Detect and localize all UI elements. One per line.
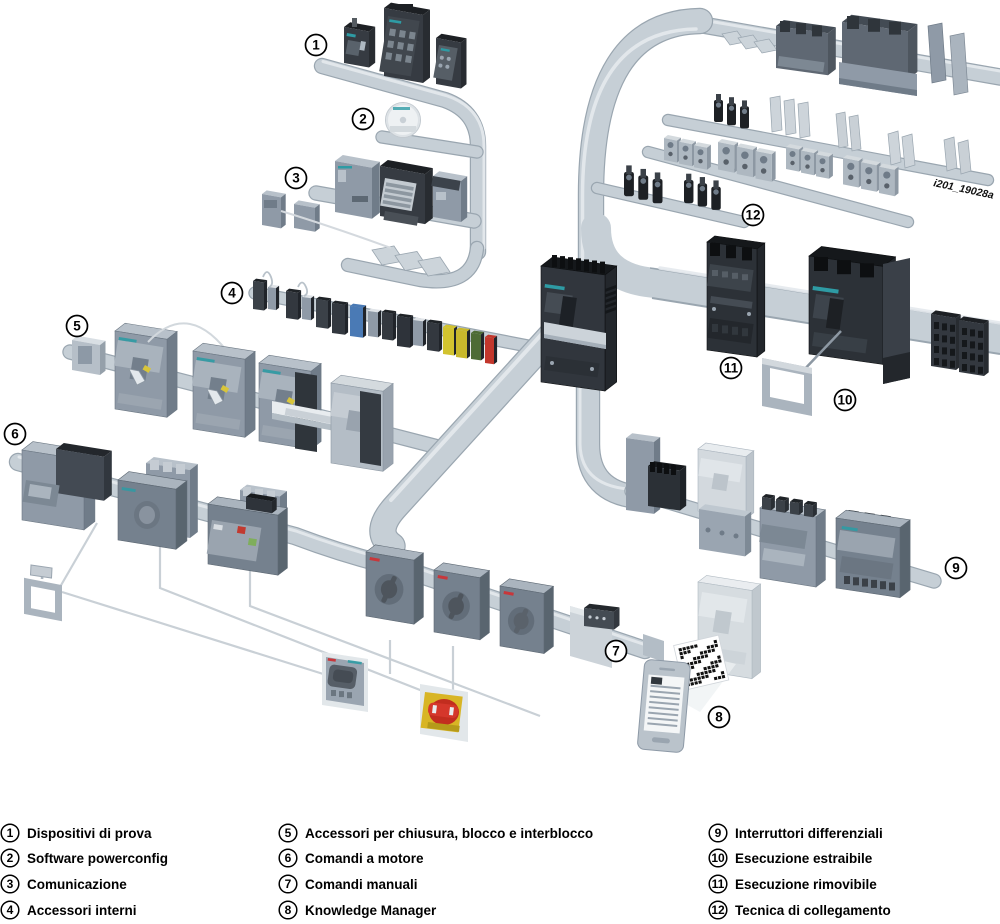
svg-text:Esecuzione estraibile: Esecuzione estraibile [735, 851, 873, 866]
svg-text:Knowledge Manager: Knowledge Manager [305, 903, 437, 918]
svg-text:3: 3 [7, 877, 14, 891]
svg-text:12: 12 [745, 208, 760, 223]
svg-text:Comunicazione: Comunicazione [27, 877, 127, 892]
svg-text:Accessori interni: Accessori interni [27, 903, 137, 918]
svg-text:10: 10 [711, 851, 725, 865]
svg-text:Tecnica di collegamento: Tecnica di collegamento [735, 903, 891, 918]
svg-text:7: 7 [612, 644, 620, 659]
svg-text:11: 11 [724, 361, 739, 376]
svg-text:Dispositivi di prova: Dispositivi di prova [27, 826, 152, 841]
svg-text:2: 2 [7, 851, 14, 865]
svg-text:5: 5 [285, 826, 292, 840]
svg-text:1: 1 [312, 38, 320, 53]
svg-text:9: 9 [715, 826, 722, 840]
svg-text:3: 3 [292, 171, 300, 186]
svg-text:9: 9 [952, 561, 960, 576]
svg-text:6: 6 [285, 851, 292, 865]
svg-text:Comandi manuali: Comandi manuali [305, 877, 418, 892]
svg-text:8: 8 [715, 710, 723, 725]
svg-text:Esecuzione rimovibile: Esecuzione rimovibile [735, 877, 877, 892]
svg-text:12: 12 [711, 903, 725, 917]
svg-text:Accessori per chiusura, blocco: Accessori per chiusura, blocco e interbl… [305, 826, 593, 841]
svg-text:2: 2 [359, 112, 367, 127]
svg-text:8: 8 [285, 903, 292, 917]
svg-text:4: 4 [228, 286, 236, 301]
svg-text:7: 7 [285, 877, 292, 891]
svg-text:Software powerconfig: Software powerconfig [27, 851, 168, 866]
svg-text:11: 11 [712, 877, 725, 891]
svg-text:5: 5 [73, 319, 81, 334]
svg-text:6: 6 [11, 427, 19, 442]
svg-text:10: 10 [837, 393, 852, 408]
svg-text:4: 4 [7, 903, 14, 917]
svg-text:1: 1 [7, 826, 14, 840]
svg-text:Comandi a motore: Comandi a motore [305, 851, 424, 866]
svg-text:Interruttori differenziali: Interruttori differenziali [735, 826, 883, 841]
